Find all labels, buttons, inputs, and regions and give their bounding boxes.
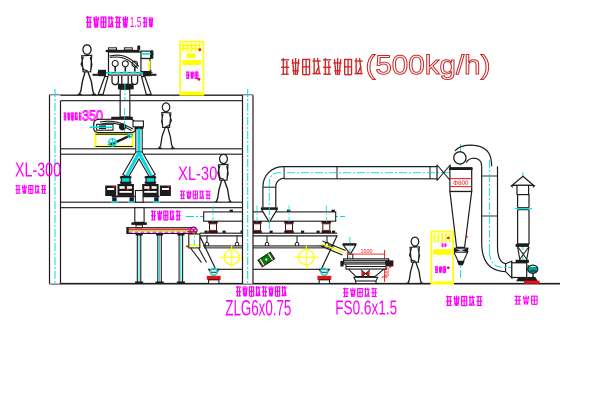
svg-text:FS0.6x1.5: FS0.6x1.5: [335, 298, 397, 320]
svg-text:XL-300: XL-300: [15, 159, 61, 182]
svg-text:Φ800: Φ800: [453, 180, 469, 187]
svg-text:(500kg/h): (500kg/h): [366, 50, 491, 80]
svg-text:1.5: 1.5: [130, 15, 142, 31]
svg-text:ZLG6x0.75: ZLG6x0.75: [225, 296, 291, 321]
svg-text:1500: 1500: [361, 249, 373, 255]
